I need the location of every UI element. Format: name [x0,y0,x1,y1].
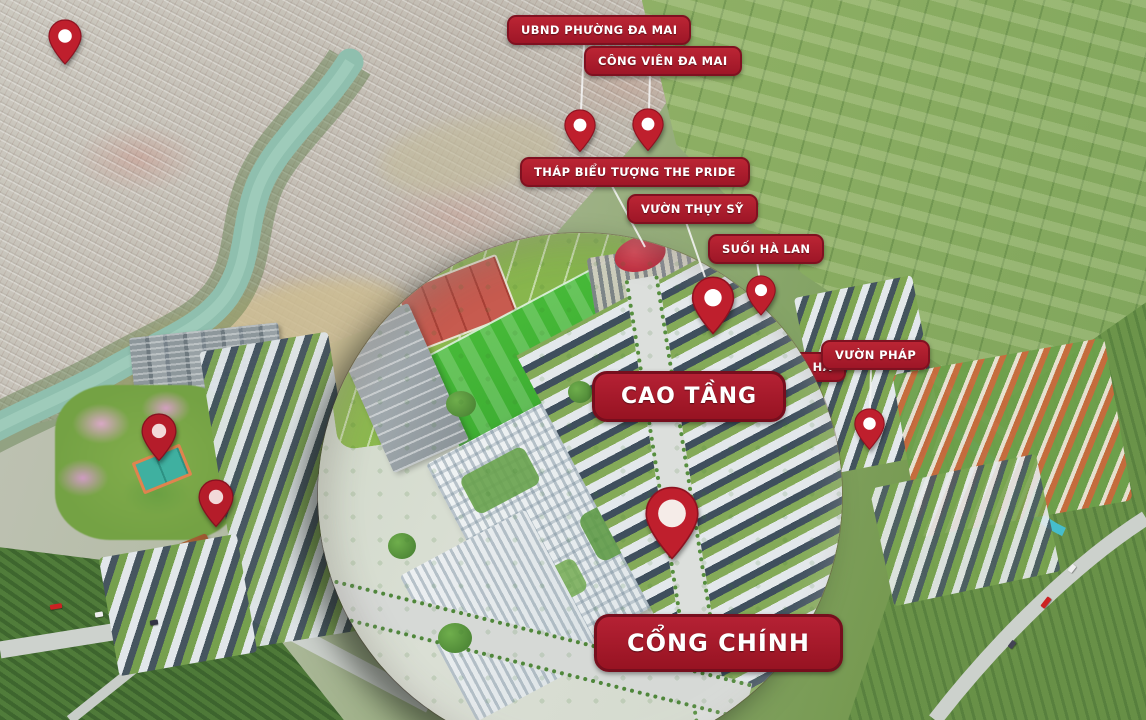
map-pin-icon pin-ubnd-phuong-da-mai[interactable] [563,109,597,152]
map-pin-icon pin-thap-bieu-tuong[interactable] [690,276,736,335]
map-pin-icon pin-cong-chinh[interactable] [643,486,701,560]
masterplan-map: HÀ UBND PHƯ [0,0,1146,720]
map-pin-icon pin-suoi-ha-lan[interactable] [745,275,777,316]
map-pin-icon pin-cong-vien-da-mai[interactable] [631,108,665,151]
map-pin-icon pin-park-tennis[interactable] [140,413,178,462]
map-pin-icon pin-clubhouse[interactable] [197,479,235,528]
map-pin-icon pin-city-far[interactable] [47,19,83,65]
badge-ubnd-phuong-da-mai: UBND PHƯỜNG ĐA MAI [507,15,691,45]
badge-suoi-ha-lan: SUỐI HÀ LAN [708,234,824,264]
badge-cong-vien-da-mai: CÔNG VIÊN ĐA MAI [584,46,742,76]
badge-cong-chinh: CỔNG CHÍNH [594,614,843,672]
badge-thap-bieu-tuong: THÁP BIỂU TƯỢNG THE PRIDE [520,157,750,187]
leader-lines [0,0,1146,720]
map-pin-icon pin-vuon-phap[interactable] [853,408,886,450]
badge-vuon-phap: VƯỜN PHÁP [821,340,930,370]
badge-cao-tang: CAO TẦNG [592,371,786,422]
badge-vuon-thuy-sy: VƯỜN THỤY SỸ [627,194,758,224]
